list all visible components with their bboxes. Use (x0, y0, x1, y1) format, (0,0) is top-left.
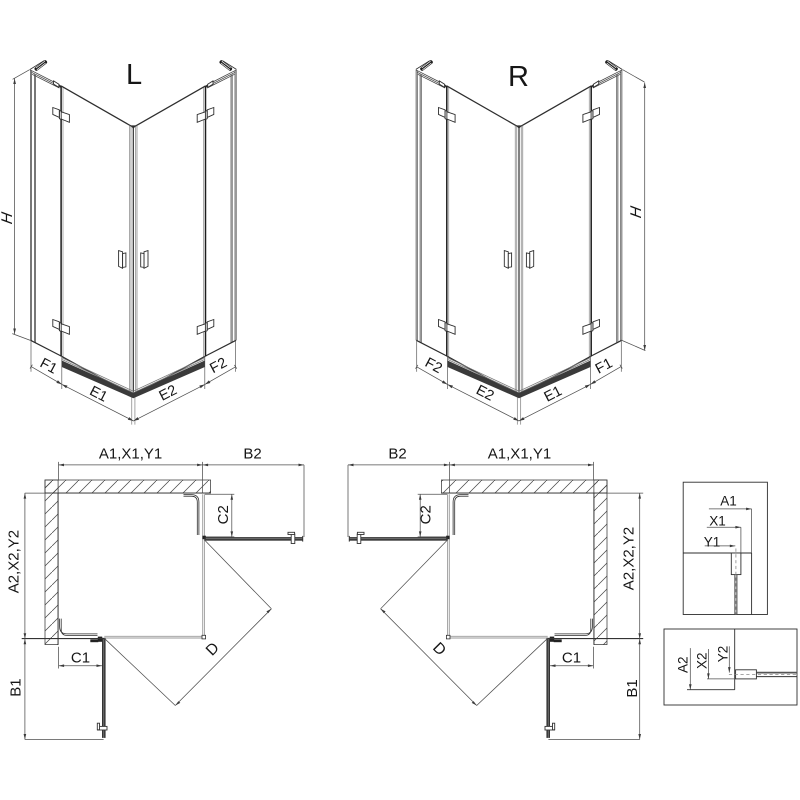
svg-text:H: H (628, 204, 645, 219)
svg-text:X1: X1 (709, 514, 726, 529)
svg-text:C2: C2 (418, 505, 435, 524)
svg-text:B1: B1 (8, 678, 25, 696)
svg-text:X2: X2 (694, 653, 709, 670)
svg-text:Y1: Y1 (704, 534, 721, 549)
svg-text:B2: B2 (243, 446, 261, 463)
svg-text:D: D (203, 639, 223, 659)
svg-text:C1: C1 (71, 650, 90, 667)
svg-text:B2: B2 (388, 446, 406, 463)
svg-text:F1: F1 (37, 355, 59, 377)
svg-text:D: D (429, 639, 449, 659)
svg-text:H: H (0, 210, 16, 225)
svg-text:A2: A2 (676, 657, 691, 674)
svg-text:B1: B1 (624, 679, 641, 697)
svg-text:C2: C2 (215, 505, 232, 524)
svg-text:A2,X2,Y2: A2,X2,Y2 (621, 527, 638, 590)
svg-text:A2,X2,Y2: A2,X2,Y2 (6, 530, 23, 593)
svg-text:F1: F1 (593, 355, 615, 377)
svg-text:E1: E1 (87, 383, 110, 405)
svg-text:A1,X1,Y1: A1,X1,Y1 (488, 446, 551, 463)
svg-text:L: L (126, 59, 142, 91)
svg-text:A1,X1,Y1: A1,X1,Y1 (99, 446, 162, 463)
svg-text:R: R (508, 61, 529, 93)
svg-text:F2: F2 (422, 355, 444, 377)
svg-text:F2: F2 (207, 355, 229, 377)
svg-text:C1: C1 (562, 650, 581, 667)
svg-text:Y2: Y2 (715, 646, 730, 663)
svg-text:A1: A1 (720, 494, 737, 509)
